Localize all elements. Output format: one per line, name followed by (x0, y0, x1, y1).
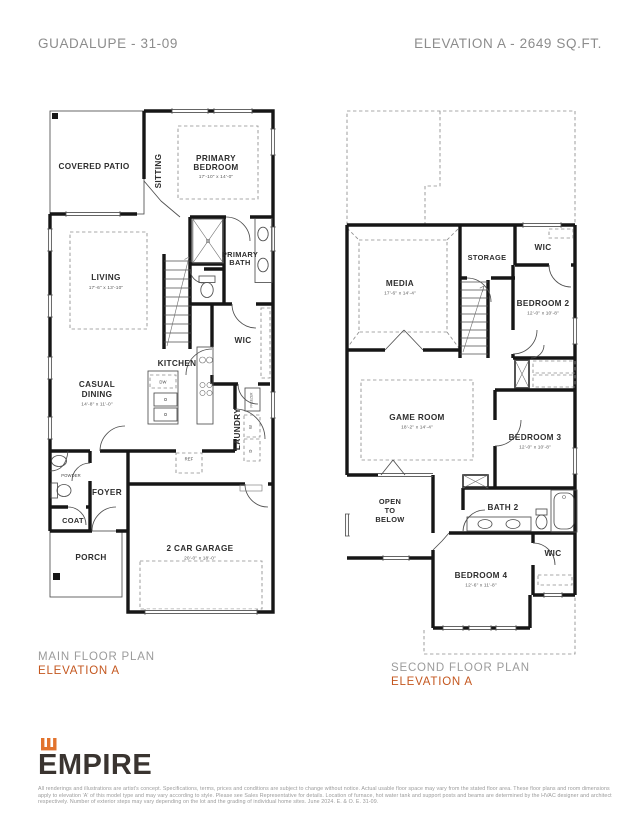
kitchen-label: KITCHEN (158, 359, 197, 368)
dryer-label: D (248, 449, 253, 452)
media-label: MEDIA (386, 279, 414, 288)
primary-bedroom-dims: 17'-10" x 14'-0" (199, 174, 234, 180)
second-floor-caption: SECOND FLOOR PLAN ELEVATION A (391, 661, 530, 689)
post-marker (53, 573, 60, 580)
floorplan-sheet: { "header": { "model": "GUADALUPE - 31-0… (0, 0, 639, 828)
porch-label: PORCH (75, 553, 106, 562)
game-room-label: GAME ROOM (389, 413, 444, 422)
bedroom2-label: BEDROOM 2 (517, 299, 570, 308)
wic-shelves (261, 308, 270, 378)
second-floor-elevation: ELEVATION A (391, 675, 530, 689)
disclaimer-text: All renderings and illustrations are art… (38, 786, 616, 806)
stairs (460, 282, 488, 354)
laundry-label: LAUNDRY (233, 408, 242, 450)
game-room-dims: 18'-2" x 14'-4" (401, 425, 433, 431)
garage-dims: 20'-0" x 18'-0" (184, 556, 216, 562)
freezer-label: FREEZER (250, 392, 254, 408)
bedroom3-dims: 12'-0" x 10'-8" (519, 445, 551, 451)
living-label: LIVING (91, 273, 120, 282)
svg-text:TO: TO (385, 506, 396, 515)
storage-label: STORAGE (468, 253, 507, 262)
svg-text:BEDROOM: BEDROOM (193, 163, 238, 172)
ref-label: REF (185, 457, 194, 462)
dw-label: DW (159, 380, 166, 385)
svg-text:BATH: BATH (229, 258, 250, 267)
garage-label: 2 CAR GARAGE (167, 544, 234, 553)
casual-dining-label: CASUAL (79, 380, 115, 389)
second-floor-caption-title: SECOND FLOOR PLAN (391, 661, 530, 675)
bedroom3-label: BEDROOM 3 (509, 433, 562, 442)
bedroom4-label: BEDROOM 4 (455, 571, 508, 580)
post-marker (52, 113, 58, 119)
washer-label: W (248, 425, 253, 429)
empire-logo: EMPIRE (38, 738, 152, 778)
casual-dining-dims: 14'-8" x 11'-0" (81, 402, 113, 408)
walls (347, 225, 575, 628)
open-to-below-label: OPEN (379, 497, 401, 506)
svg-text:DINING: DINING (82, 390, 113, 399)
garage-door-dashed (140, 561, 262, 609)
main-floor-elevation: ELEVATION A (38, 664, 155, 678)
doors (68, 181, 268, 531)
porch-outline (50, 531, 122, 597)
living-dims: 17'-6" x 13'-10" (89, 285, 124, 291)
bath2-fixtures (467, 490, 577, 532)
bedroom4-dims: 12'-6" x 11'-8" (465, 583, 497, 589)
sitting-label: SITTING (154, 154, 163, 189)
powder-label: POWDER (61, 473, 80, 478)
media-dims: 17'-6" x 14'-4" (384, 291, 416, 297)
bedroom2-dims: 12'-0" x 10'-8" (527, 311, 559, 317)
brand-name: EMPIRE (38, 752, 152, 778)
svg-text:BELOW: BELOW (375, 515, 404, 524)
second-floor-plan-drawing: MEDIA 17'-6" x 14'-4" STORAGE WIC BEDROO… (345, 98, 595, 658)
main-floor-caption: MAIN FLOOR PLAN ELEVATION A (38, 650, 155, 678)
stairs (164, 257, 192, 346)
elevation-sqft-title: ELEVATION A - 2649 SQ.FT. (414, 36, 602, 51)
coat-label: COAT (62, 516, 84, 525)
wic-bottom-label: WIC (545, 549, 562, 558)
main-floor-plan-drawing: COVERED PATIO SITTING PRIMARY BEDROOM 17… (40, 99, 290, 647)
main-floor-caption-title: MAIN FLOOR PLAN (38, 650, 155, 664)
footer: EMPIRE All renderings and illustrations … (38, 738, 616, 806)
wic-top-label: WIC (535, 243, 552, 252)
open-to-below-railing (378, 460, 433, 477)
bath2-label: BATH 2 (487, 503, 518, 512)
wic-label: WIC (235, 336, 252, 345)
primary-bedroom-label: PRIMARY (196, 154, 236, 163)
foyer-label: FOYER (92, 488, 122, 497)
covered-patio-label: COVERED PATIO (58, 162, 129, 171)
plan-title: GUADALUPE - 31-09 (38, 36, 178, 51)
